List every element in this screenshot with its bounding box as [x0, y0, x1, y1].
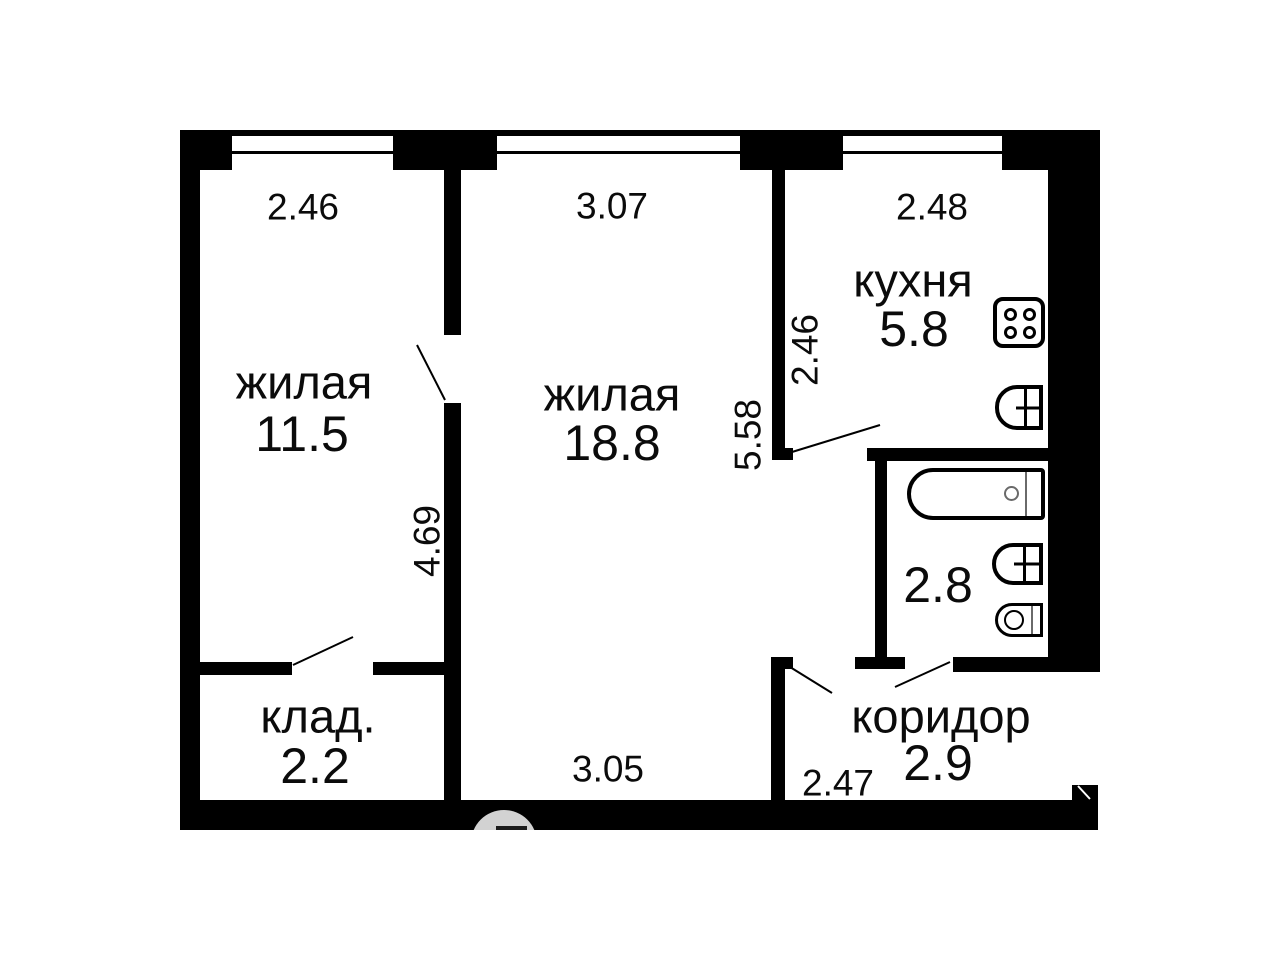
dim-corridor-width-bottom: 2.47 — [802, 765, 874, 802]
door-swing-bathroom — [895, 662, 950, 687]
dim-living1-width-top: 2.46 — [267, 189, 339, 226]
bathtub-drain — [1004, 486, 1019, 501]
room-label-kitchen: кухня — [853, 257, 973, 304]
toilet-icon — [995, 603, 1043, 637]
toilet-bowl — [1004, 610, 1024, 630]
kitchen-sink-icon — [995, 385, 1043, 430]
door-swing-kitchen — [792, 425, 880, 452]
room-area-living1: 11.5 — [255, 409, 349, 459]
bathtub-icon — [907, 468, 1045, 520]
bathtub-endline — [1025, 472, 1027, 516]
door-swing-corridor — [790, 667, 832, 693]
door-swing-storage — [293, 637, 353, 665]
stove-burner-icon — [1023, 308, 1036, 321]
dim-kitchen-width-top: 2.48 — [896, 189, 968, 226]
room-label-storage: клад. — [260, 693, 375, 740]
dim-living2-width-top: 3.07 — [576, 188, 648, 225]
dim-living1-height-right: 4.69 — [409, 505, 446, 577]
room-label-living1: жилая — [236, 359, 373, 406]
dim-living2-width-bottom: 3.05 — [572, 751, 644, 788]
toilet-tankline — [1031, 606, 1033, 634]
sink-handle — [1014, 563, 1039, 566]
room-label-corridor: коридор — [851, 693, 1030, 740]
room-area-living2: 18.8 — [563, 418, 660, 468]
stove-burner-icon — [1004, 326, 1017, 339]
dim-kitchen-depth-left: 2.46 — [787, 314, 824, 386]
stove-icon — [993, 297, 1045, 348]
room-area-storage: 2.2 — [280, 741, 350, 791]
room-label-living2: жилая — [544, 371, 681, 418]
sink-handle — [1016, 406, 1039, 409]
room-area-kitchen: 5.8 — [879, 304, 949, 354]
stove-burner-icon — [1004, 308, 1017, 321]
stove-burner-icon — [1023, 326, 1036, 339]
dim-living2-height-right: 5.58 — [730, 399, 767, 471]
room-area-corridor: 2.9 — [903, 738, 973, 788]
floor-plan: жилая 11.5 жилая 18.8 кухня 5.8 клад. 2.… — [0, 0, 1280, 961]
door-lines-layer — [0, 0, 1280, 961]
entrance-arrow-icon — [1078, 786, 1090, 799]
door-swing-living1 — [417, 345, 445, 400]
room-area-bathroom: 2.8 — [903, 560, 973, 610]
bathroom-sink-icon — [992, 543, 1043, 585]
